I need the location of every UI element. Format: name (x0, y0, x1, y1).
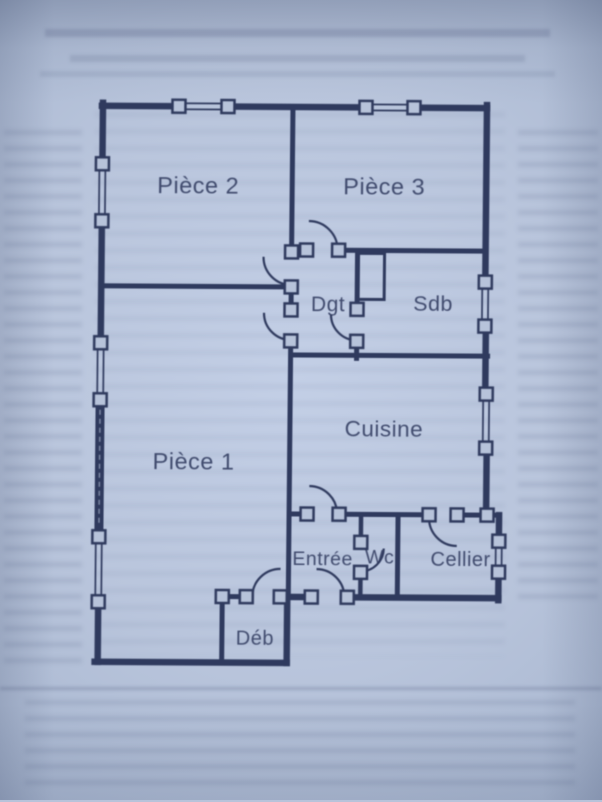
room-label-wc: Wc (365, 546, 394, 568)
room-label-piece-1: Pièce 1 (152, 448, 234, 474)
jamb-block (94, 393, 107, 406)
jamb-block (284, 334, 297, 347)
jamb-block (492, 535, 505, 548)
window-top-right (373, 104, 407, 110)
jamb-block (350, 335, 363, 348)
jamb-block (172, 100, 185, 113)
jamb-block (305, 591, 318, 604)
jamb-block (481, 509, 494, 522)
jamb-block (216, 590, 229, 603)
window-left-3 (95, 544, 101, 595)
jamb-block (285, 245, 298, 258)
jamb-block (332, 244, 345, 257)
room-label-sdb: Sdb (413, 292, 453, 316)
jamb-block (300, 243, 313, 256)
jamb-block (359, 101, 372, 114)
jamb-block (479, 276, 492, 289)
window-right-cuisine (483, 401, 489, 441)
room-label-dgt: Dgt (311, 293, 345, 316)
jamb-block (350, 303, 363, 316)
jamb-block (492, 566, 505, 579)
jamb-block (333, 508, 346, 521)
room-labels: Pièce 2 Pièce 3 Dgt Sdb Cuisine Pièce 1 … (151, 172, 495, 651)
jamb-block (478, 320, 491, 333)
jamb-block (301, 507, 314, 520)
room-label-piece-2: Pièce 2 (157, 172, 239, 198)
jamb-block (94, 336, 107, 349)
jamb-block (341, 591, 354, 604)
jamb-block (92, 530, 105, 543)
page: { "palette": { "paper": "#b7c3da", "pape… (0, 0, 602, 800)
jamb-block (407, 101, 420, 114)
jamb-block (240, 590, 253, 603)
window-right-sdb (482, 289, 488, 319)
jamb-block (285, 280, 298, 293)
floor-plan: Pièce 2 Pièce 3 Dgt Sdb Cuisine Pièce 1 … (0, 0, 602, 802)
jamb-block (479, 442, 492, 455)
jamb-block (423, 508, 436, 521)
jamb-block (480, 388, 493, 401)
jamb-block (95, 214, 108, 227)
jamb-block (221, 100, 234, 113)
room-label-cuisine: Cuisine (344, 416, 423, 441)
room-label-cellier: Cellier (430, 549, 490, 571)
room-label-deb: Déb (236, 628, 274, 650)
jamb-block (96, 157, 109, 170)
exterior-walls (95, 103, 503, 664)
window-right-cellier (496, 548, 502, 565)
sdb-duct-box (359, 253, 384, 299)
jamb-block (92, 595, 105, 608)
window-top-left (186, 103, 221, 109)
jamb-block (274, 590, 287, 603)
jamb-block (284, 303, 297, 316)
window-left-1 (99, 171, 105, 214)
jamb-block (451, 508, 464, 521)
room-label-entree: Entrée (292, 548, 353, 570)
room-label-piece-3: Pièce 3 (343, 173, 425, 199)
window-left-2 (97, 350, 103, 393)
